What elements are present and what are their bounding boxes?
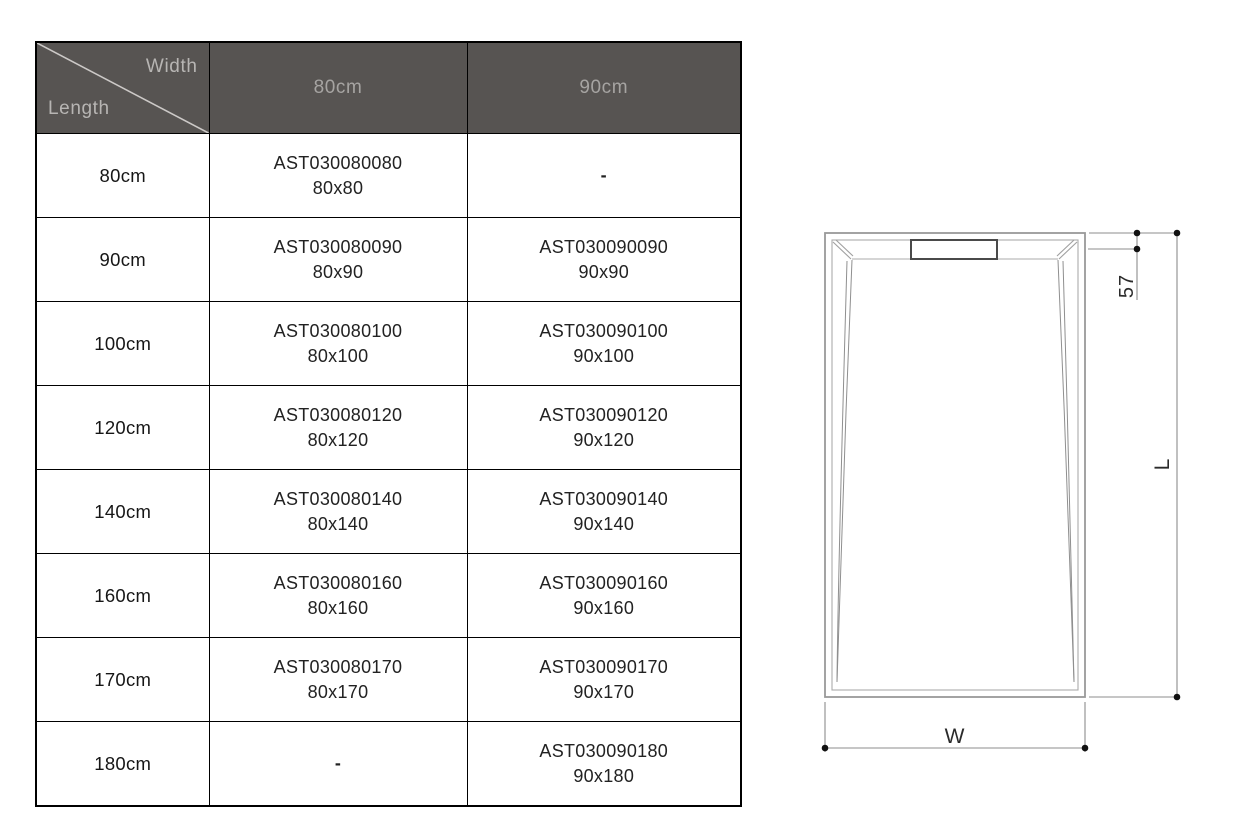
size-label: 80x170 bbox=[210, 680, 467, 704]
table-row: 80cmAST03008008080x80- bbox=[36, 134, 741, 218]
product-code: AST030090100 bbox=[468, 319, 741, 343]
row-length-label: 170cm bbox=[36, 638, 209, 722]
tray-outer-rim bbox=[825, 233, 1085, 697]
code-cell: AST03008008080x80 bbox=[209, 134, 467, 218]
size-label: 90x90 bbox=[468, 260, 741, 284]
code-cell: AST03008014080x140 bbox=[209, 470, 467, 554]
table-row: 170cmAST03008017080x170AST03009017090x17… bbox=[36, 638, 741, 722]
shower-tray-drawing: 57 L W bbox=[790, 220, 1220, 780]
code-cell: - bbox=[467, 134, 741, 218]
table-body: 80cmAST03008008080x80-90cmAST03008009080… bbox=[36, 134, 741, 807]
corner-header-cell: Width Length bbox=[36, 42, 209, 134]
code-cell: AST03008009080x90 bbox=[209, 218, 467, 302]
size-label: 80x90 bbox=[210, 260, 467, 284]
product-code: AST030090160 bbox=[468, 571, 741, 595]
column-header-80cm: 80cm bbox=[209, 42, 467, 134]
size-label: 90x170 bbox=[468, 680, 741, 704]
drain-cover bbox=[911, 240, 997, 259]
table-row: 100cmAST03008010080x100AST03009010090x10… bbox=[36, 302, 741, 386]
size-label: 80x80 bbox=[210, 176, 467, 200]
size-label: 90x160 bbox=[468, 596, 741, 620]
code-cell: AST03009012090x120 bbox=[467, 386, 741, 470]
product-code: AST030090180 bbox=[468, 739, 741, 763]
size-code-table-grid: Width Length 80cm 90cm 80cmAST0300800808… bbox=[35, 41, 742, 807]
table-row: 120cmAST03008012080x120AST03009012090x12… bbox=[36, 386, 741, 470]
size-label: 90x100 bbox=[468, 344, 741, 368]
table-row: 160cmAST03008016080x160AST03009016090x16… bbox=[36, 554, 741, 638]
slope-fold-lines bbox=[837, 260, 1074, 682]
code-cell: AST03009014090x140 bbox=[467, 470, 741, 554]
row-length-label: 180cm bbox=[36, 722, 209, 807]
length-axis-label: Length bbox=[48, 98, 110, 120]
row-length-label: 120cm bbox=[36, 386, 209, 470]
code-cell: AST03009017090x170 bbox=[467, 638, 741, 722]
row-length-label: 160cm bbox=[36, 554, 209, 638]
product-code: AST030080120 bbox=[210, 403, 467, 427]
tray-inner-rim bbox=[832, 240, 1078, 690]
code-cell: AST03009009090x90 bbox=[467, 218, 741, 302]
product-code: AST030090120 bbox=[468, 403, 741, 427]
product-code: AST030080090 bbox=[210, 235, 467, 259]
size-code-table: Width Length 80cm 90cm 80cmAST0300800808… bbox=[35, 41, 740, 807]
product-code: AST030090090 bbox=[468, 235, 741, 259]
code-cell: AST03009016090x160 bbox=[467, 554, 741, 638]
size-label: 80x160 bbox=[210, 596, 467, 620]
column-header-90cm: 90cm bbox=[467, 42, 741, 134]
row-length-label: 90cm bbox=[36, 218, 209, 302]
size-label: 80x120 bbox=[210, 428, 467, 452]
spec-sheet-page: Width Length 80cm 90cm 80cmAST0300800808… bbox=[0, 0, 1238, 824]
product-code: AST030080160 bbox=[210, 571, 467, 595]
code-cell: AST03009010090x100 bbox=[467, 302, 741, 386]
dimension-L-label: L bbox=[1151, 458, 1174, 471]
table-row: 140cmAST03008014080x140AST03009014090x14… bbox=[36, 470, 741, 554]
code-cell: AST03008017080x170 bbox=[209, 638, 467, 722]
empty-marker: - bbox=[210, 751, 467, 775]
size-label: 90x180 bbox=[468, 764, 741, 788]
row-length-label: 100cm bbox=[36, 302, 209, 386]
table-header-row: Width Length 80cm 90cm bbox=[36, 42, 741, 134]
code-cell: AST03008016080x160 bbox=[209, 554, 467, 638]
product-code: AST030080140 bbox=[210, 487, 467, 511]
size-label: 80x100 bbox=[210, 344, 467, 368]
code-cell: AST03008012080x120 bbox=[209, 386, 467, 470]
product-code: AST030080100 bbox=[210, 319, 467, 343]
size-label: 90x120 bbox=[468, 428, 741, 452]
product-code: AST030080170 bbox=[210, 655, 467, 679]
code-cell: - bbox=[209, 722, 467, 807]
row-length-label: 80cm bbox=[36, 134, 209, 218]
product-code: AST030090170 bbox=[468, 655, 741, 679]
product-code: AST030080080 bbox=[210, 151, 467, 175]
row-length-label: 140cm bbox=[36, 470, 209, 554]
product-code: AST030090140 bbox=[468, 487, 741, 511]
table-row: 90cmAST03008009080x90AST03009009090x90 bbox=[36, 218, 741, 302]
code-cell: AST03009018090x180 bbox=[467, 722, 741, 807]
empty-marker: - bbox=[468, 163, 741, 187]
dimension-57-label: 57 bbox=[1116, 274, 1138, 298]
size-label: 80x140 bbox=[210, 512, 467, 536]
table-row: 180cm-AST03009018090x180 bbox=[36, 722, 741, 807]
size-label: 90x140 bbox=[468, 512, 741, 536]
dimension-W-label: W bbox=[945, 725, 966, 748]
width-axis-label: Width bbox=[146, 56, 198, 78]
code-cell: AST03008010080x100 bbox=[209, 302, 467, 386]
measurement-dots bbox=[822, 230, 1181, 752]
